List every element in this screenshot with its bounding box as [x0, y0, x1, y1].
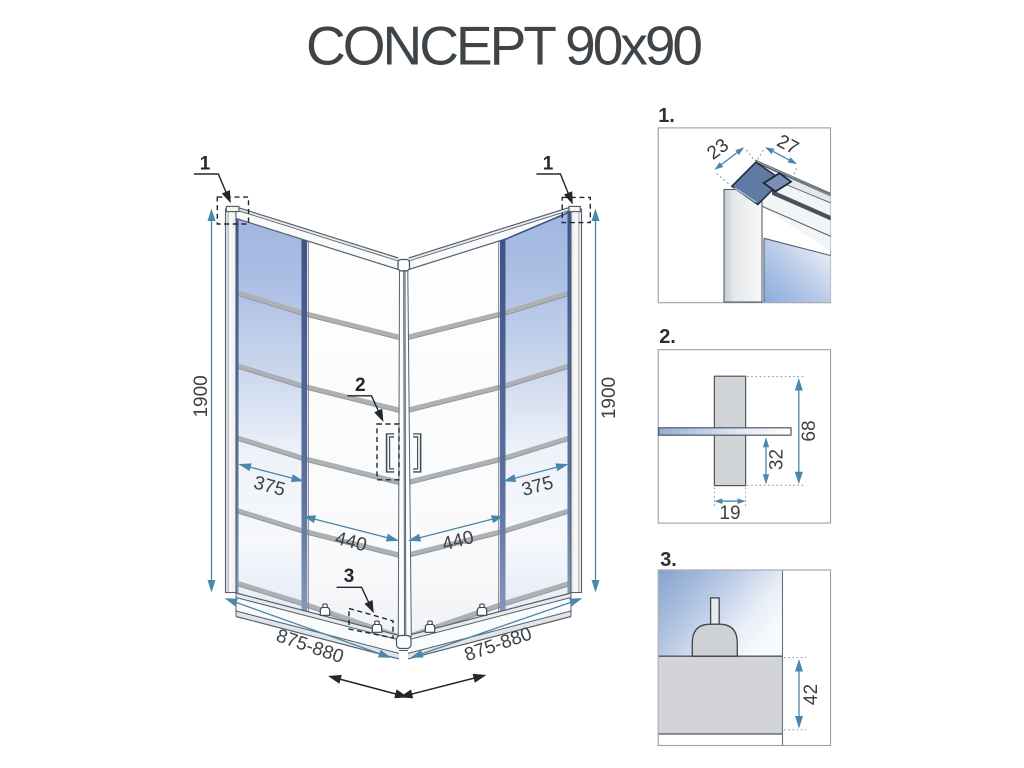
svg-text:1900: 1900	[191, 375, 212, 417]
svg-text:68: 68	[799, 420, 820, 441]
svg-text:1: 1	[200, 154, 211, 175]
svg-text:3: 3	[344, 566, 355, 587]
svg-text:1900: 1900	[599, 377, 620, 419]
svg-text:CONCEPT 90x90: CONCEPT 90x90	[306, 15, 701, 77]
svg-text:3.: 3.	[660, 549, 677, 571]
svg-text:42: 42	[801, 684, 822, 705]
svg-text:19: 19	[719, 503, 740, 524]
svg-text:32: 32	[767, 449, 788, 470]
svg-text:2: 2	[355, 375, 366, 396]
svg-text:2.: 2.	[659, 326, 676, 348]
svg-text:1: 1	[543, 154, 554, 175]
svg-text:1.: 1.	[658, 105, 675, 127]
